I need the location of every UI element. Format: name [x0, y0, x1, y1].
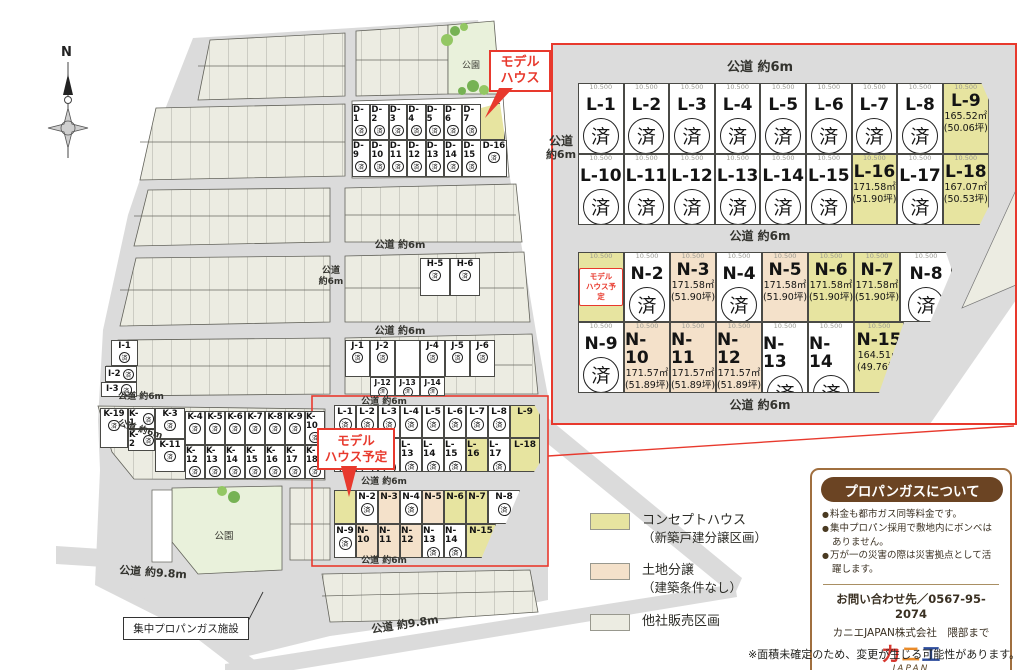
road-label-6m: 公道 約6m	[96, 392, 186, 403]
divider	[823, 584, 999, 585]
sold-seal: 済	[583, 189, 619, 225]
model-house-plan-callout: モデル ハウス予定	[317, 428, 395, 470]
lot-id-label: L-6	[447, 408, 463, 417]
sold-seal: 済	[355, 161, 367, 173]
road-label-6m-vertical: 公道 約6m	[317, 266, 345, 288]
sold-seal: 済	[813, 375, 849, 393]
sold-seal: 済	[466, 125, 478, 137]
lot-area-tsubo: (51.90坪)	[763, 292, 807, 304]
map-graphic: コンセプトハウス （新築戸建分譲区画）	[642, 512, 767, 546]
lot-K-17: K-17済	[285, 445, 305, 479]
sold-seal: 済	[583, 118, 619, 154]
lot-area-tsubo: (51.90坪)	[852, 194, 896, 206]
lot-N-9: 10.500N-9済	[578, 322, 624, 393]
lot-id-label: N-14	[445, 527, 465, 546]
lot-N-10: N-10	[356, 524, 378, 558]
lot-id-label: D-11	[390, 142, 406, 160]
sold-seal: 済	[811, 118, 847, 154]
lot-id-label: N-12	[717, 332, 761, 368]
lot-K-13: K-13済	[205, 445, 225, 479]
lot-N-3: 10.500N-3171.58㎡(51.90坪)	[670, 252, 716, 322]
lot-id-label: L-12	[671, 168, 713, 186]
lot-id-label: L-8	[491, 408, 507, 417]
lot-id-label: N-13	[763, 336, 807, 372]
lot-id-label: N-7	[860, 262, 893, 280]
lot-area-sqm: 171.58㎡	[672, 280, 715, 292]
sold-seal: 済	[405, 418, 418, 431]
callout-arrow-icon	[333, 466, 373, 500]
lot-id-label: L-7	[860, 97, 890, 115]
lot-cell	[395, 340, 420, 377]
lot-K-4: K-4済	[185, 411, 205, 445]
lot-id-label: L-16	[854, 164, 896, 182]
lot-id-label: L-15	[445, 441, 465, 460]
sold-seal: 済	[269, 466, 281, 478]
lot-id-label: N-10	[357, 527, 377, 546]
sold-seal: 済	[720, 118, 756, 154]
map-graphic	[65, 97, 72, 104]
lot-D-14: D-14済	[444, 140, 462, 177]
building-strip	[152, 490, 172, 562]
sold-seal: 済	[411, 125, 423, 137]
lot-id-label: D-7	[463, 106, 479, 124]
lot-id-label: I-2	[108, 370, 121, 379]
zoom-connector-line	[548, 426, 1014, 456]
lot-id-label: N-14	[809, 336, 853, 372]
lot-area-tsubo: (50.06坪)	[944, 123, 988, 135]
propane-bullet: 集中プロパン採用で敷地内にボンベはありません。	[822, 522, 1000, 550]
sold-seal: 済	[498, 503, 511, 516]
lot-N-5: N-5	[422, 490, 444, 524]
map-graphic	[106, 338, 330, 396]
map-graphic: ハウス予定	[584, 282, 618, 302]
lot-id-label: L-6	[814, 97, 844, 115]
lot-J-14: J-14済	[420, 377, 445, 396]
lot-id-label: N-5	[424, 493, 442, 502]
lot-dimension: 10.500	[717, 323, 761, 330]
legend-label: 他社販売区画	[642, 613, 720, 631]
lot-id-label: H-5	[427, 260, 444, 269]
callout-line2: ハウス	[500, 71, 539, 87]
sold-seal: 済	[123, 369, 135, 381]
lot-dimension: 10.500	[898, 155, 942, 162]
sold-seal: 済	[429, 125, 441, 137]
sold-seal: 済	[164, 420, 176, 432]
lot-L-15: L-15済	[444, 438, 466, 472]
lot-id-label: L-1	[586, 97, 616, 115]
map-graphic	[356, 25, 448, 96]
lot-id-label: N-3	[380, 493, 398, 502]
lot-N-12: 10.500N-12171.57㎡(51.89坪)	[716, 322, 762, 393]
propane-bullet: 料金も都市ガス同等料金です。	[822, 508, 1000, 522]
sold-seal: 済	[449, 461, 462, 472]
sold-seal: 済	[377, 352, 389, 364]
legend: コンセプトハウス （新築戸建分譲区画） 土地分譲 （建築条件なし） 他社販売区画	[590, 512, 767, 647]
lot-L-10: 10.500L-10済	[578, 154, 624, 225]
sold-seal: 済	[628, 118, 664, 154]
propane-bullet: 万が一の災害の際は災害拠点として活躍します。	[822, 549, 1000, 577]
lot-N-10: 10.500N-10171.57㎡(51.89坪)	[624, 322, 670, 393]
sold-seal: 済	[811, 189, 847, 225]
lot-I-2: I-2済	[105, 366, 137, 382]
lot-id-label: L-13	[401, 441, 421, 460]
lot-L-14: 10.500L-14済	[760, 154, 806, 225]
sold-seal: 済	[427, 461, 440, 472]
sold-seal: 済	[429, 270, 441, 282]
sold-seal: 済	[902, 118, 938, 154]
sold-seal: 済	[269, 423, 281, 435]
lot-id-label: D-15	[463, 142, 479, 160]
lot-L-5: L-5済	[422, 405, 444, 438]
road-label-6m: 公道 約6m	[340, 326, 460, 338]
lot-area-tsubo: (51.90坪)	[671, 292, 715, 304]
sold-seal: 済	[189, 466, 201, 478]
lot-N-13: 10.500N-13済	[762, 322, 808, 393]
lot-id-label: K-3	[162, 410, 177, 419]
sold-seal: 済	[427, 352, 439, 364]
sold-seal: 済	[471, 418, 484, 431]
lot-H-5: H-5済	[420, 258, 450, 296]
lot-dimension: 10.500	[761, 84, 805, 91]
inset-road-label-bottom: 公道 約6m	[640, 398, 880, 412]
lot-L-6: L-6済	[444, 405, 466, 438]
road-label-line1: 公道	[317, 266, 345, 277]
lot-id-label: D-6	[445, 106, 461, 124]
site-plan-flyer: N D-1済D-2済D-3済D-4済D-5済D-6済D-7済D-9済D-10済D…	[0, 0, 1024, 670]
lot-J-1: J-1済	[345, 340, 370, 377]
lot-id-label: N-7	[468, 493, 486, 502]
lot-L-18: L-18	[510, 438, 540, 472]
inset-road-label-left: 公道 約6m	[538, 134, 584, 162]
lot-id-label: L-7	[469, 408, 485, 417]
lot-id-label: N-8	[909, 266, 942, 284]
sold-seal: 済	[355, 125, 367, 137]
lot-area-tsubo: (50.53坪)	[944, 194, 988, 206]
sold-seal: 済	[392, 161, 404, 173]
lot-dimension: 10.500	[944, 155, 988, 162]
lot-L-8: L-8済	[488, 405, 510, 438]
sold-seal: 済	[674, 189, 710, 225]
propane-title: プロパンガスについて	[821, 477, 1003, 502]
lot-area-sqm: 171.58㎡	[853, 182, 896, 194]
lot-L-3: 10.500L-3済	[669, 83, 715, 154]
lot-J-2: J-2済	[370, 340, 395, 377]
lot-N-3: N-3	[378, 490, 400, 524]
sold-seal: 済	[720, 189, 756, 225]
lot-N-7: 10.500N-7171.58㎡(51.90坪)	[854, 252, 900, 322]
lot-area-tsubo: (51.90坪)	[809, 292, 853, 304]
propane-contact-phone: お問い合わせ先／0567-95-2074	[821, 591, 1001, 621]
sold-seal: 済	[411, 161, 423, 173]
lot-L-18: 10.500L-18167.07㎡(50.53坪)	[943, 154, 989, 225]
lot-id-label: K-7	[247, 413, 262, 422]
legend-label: 土地分譲	[642, 562, 742, 580]
lot-J-6: J-6済	[470, 340, 495, 377]
lot-dimension: 10.500	[901, 253, 951, 260]
lot-J-13: J-13済	[395, 377, 420, 396]
sold-seal: 済	[189, 423, 201, 435]
sold-seal: 済	[229, 466, 241, 478]
lot-dimension: 10.500	[671, 253, 715, 260]
model-house-plan-mini-label: モデルハウス予定	[579, 268, 623, 306]
lot-id-label: N-13	[423, 527, 443, 546]
lot-dimension: 10.500	[625, 253, 669, 260]
lot-L-11: 10.500L-11済	[624, 154, 670, 225]
legend-swatch-other	[590, 614, 630, 631]
map-graphic	[467, 80, 479, 92]
legend-item-other: 他社販売区画	[590, 613, 767, 631]
lot-area-sqm: 165.52㎡	[944, 111, 987, 123]
sold-seal: 済	[143, 413, 155, 425]
sold-seal: 済	[361, 503, 374, 516]
lot-dimension: 10.500	[579, 84, 623, 91]
lot-D-9: D-9済	[352, 140, 370, 177]
lot-K-12: K-12済	[185, 445, 205, 479]
map-graphic	[460, 23, 468, 31]
lot-id-label: K-14	[226, 447, 244, 465]
lot-id-label: D-1	[353, 106, 369, 124]
sold-seal: 済	[452, 352, 464, 364]
lot-D-13: D-13済	[426, 140, 444, 177]
lot-K-9: K-9済	[285, 411, 305, 445]
lot-id-label: K-9	[287, 413, 302, 422]
lot-dimension: 10.500	[625, 323, 669, 330]
lot-L-13: 10.500L-13済	[715, 154, 761, 225]
lot-id-label: D-12	[408, 142, 424, 160]
lot-id-label: I-1	[118, 342, 131, 351]
lot-id-label: L-17	[489, 441, 509, 460]
lot-id-label: N-4	[402, 493, 420, 502]
lot-L-17: L-17済	[488, 438, 510, 472]
lot-N-11: 10.500N-11171.57㎡(51.89坪)	[670, 322, 716, 393]
sold-seal: 済	[374, 125, 386, 137]
lot-id-label: D-5	[427, 106, 443, 124]
lot-D-7: D-7済	[462, 104, 480, 140]
sold-seal: 済	[488, 152, 500, 164]
map-graphic	[485, 88, 513, 118]
lot-id-label: J-4	[426, 342, 439, 351]
road-label-6m: 公道 約6m	[340, 240, 460, 252]
sold-seal: 済	[628, 189, 664, 225]
lot-L-1: 10.500L-1済	[578, 83, 624, 154]
lot-id-label: L-15	[808, 168, 850, 186]
lot-id-label: L-10	[580, 168, 622, 186]
map-graphic	[228, 491, 240, 503]
sold-seal: 済	[765, 189, 801, 225]
lot-J-4: J-4済	[420, 340, 445, 377]
road-label-6m-smallmap-bottom: 公道 約6m	[344, 556, 424, 567]
lot-id-label: L-3	[677, 97, 707, 115]
sold-seal: 済	[229, 423, 241, 435]
lot-N-14: N-14済	[444, 524, 466, 558]
road-label-line2: 約6m	[317, 277, 345, 288]
lot-dimension: 10.500	[716, 84, 760, 91]
lot-dimension: 10.500	[579, 253, 623, 260]
lot-N-4: 10.500N-4済	[716, 252, 762, 322]
lot-id-label: L-17	[899, 168, 941, 186]
lot-N-4: N-4済	[400, 490, 422, 524]
callout-line2: ハウス予定	[325, 449, 388, 465]
lot-H-6: H-6済	[450, 258, 480, 296]
propane-company: カニエJAPAN株式会社 隈部まで	[821, 625, 1001, 640]
legend-item-concept: コンセプトハウス （新築戸建分譲区画）	[590, 512, 767, 546]
inset-road-label-top: 公道 約6m	[640, 60, 880, 76]
lot-id-label: J-6	[476, 342, 489, 351]
lot-id-label: H-6	[457, 260, 474, 269]
lot-L-17: 10.500L-17済	[897, 154, 943, 225]
lot-id-label: N-6	[814, 262, 847, 280]
sold-seal: 済	[674, 118, 710, 154]
lot-id-label: N-3	[676, 262, 709, 280]
sold-seal: 済	[249, 466, 261, 478]
lot-id-label: N-4	[722, 266, 755, 284]
lot-dimension: 10.500	[807, 84, 851, 91]
lot-id-label: N-11	[671, 332, 715, 368]
callout-arrow-icon	[485, 88, 525, 122]
map-graphic: 他社販売区画	[642, 613, 720, 631]
lot-area-tsubo: (51.90坪)	[855, 292, 899, 304]
lot-dimension: 10.500	[855, 323, 903, 330]
lot-L-2: 10.500L-2済	[624, 83, 670, 154]
callout-line1: モデル	[500, 55, 539, 71]
lot-J-5: J-5済	[445, 340, 470, 377]
sold-seal: 済	[427, 547, 440, 558]
lot-id-label: L-16	[467, 441, 487, 460]
lot-I-1: I-1済	[111, 340, 138, 366]
compass-north-label: N	[61, 45, 72, 60]
lot-D-12: D-12済	[407, 140, 425, 177]
sold-seal: 済	[856, 118, 892, 154]
sold-seal: 済	[477, 352, 489, 364]
park-label-top: 公園	[448, 58, 494, 71]
sold-seal: 済	[629, 287, 665, 322]
lot-N-6: N-6	[444, 490, 466, 524]
lot-id-label: N-9	[336, 527, 354, 536]
lot-id-label: J-2	[376, 342, 389, 351]
lot-dimension: 10.500	[625, 84, 669, 91]
lot-id-label: L-5	[425, 408, 441, 417]
sold-seal: 済	[493, 418, 506, 431]
lot-area-sqm: 171.57㎡	[672, 368, 715, 380]
propane-bullet-list: 料金も都市ガス同等料金です。 集中プロパン採用で敷地内にボンベはありません。 万…	[821, 508, 1001, 577]
callout-line1: モデル	[337, 433, 375, 449]
lot-area-sqm: 171.57㎡	[718, 368, 761, 380]
map-graphic	[450, 26, 460, 36]
lot-id-label: D-10	[371, 142, 387, 160]
road-label-line2: 約6m	[538, 148, 584, 161]
lot-id-label: L-14	[762, 168, 804, 186]
lot-id-label: K-6	[227, 413, 242, 422]
lot-N-5: 10.500N-5171.58㎡(51.90坪)	[762, 252, 808, 322]
lot-D-6: D-6済	[444, 104, 462, 140]
map-graphic	[345, 184, 522, 242]
lot-id-label: J-13	[399, 379, 415, 387]
lot-dimension: 10.500	[716, 155, 760, 162]
lot-dimension: 10.500	[625, 155, 669, 162]
legend-swatch-concept	[590, 513, 630, 530]
lot-id-label: N-10	[625, 332, 669, 368]
sold-seal: 済	[765, 118, 801, 154]
lot-dimension: 10.500	[761, 155, 805, 162]
lot-L-16: 10.500L-16171.58㎡(51.90坪)	[852, 154, 898, 225]
lot-id-label: K-4	[187, 413, 202, 422]
lot-id-label: L-13	[717, 168, 759, 186]
lot-dimension: 10.500	[898, 84, 942, 91]
lot-id-label: N-11	[379, 527, 399, 546]
lot-id-label: L-2	[359, 408, 375, 417]
lot-id-label: J-12	[374, 379, 390, 387]
lot-L-9: 10.500L-9165.52㎡(50.06坪)	[943, 83, 989, 154]
lot-id-label: D-9	[353, 142, 369, 160]
lot-N-2: 10.500N-2済	[624, 252, 670, 322]
sold-seal: 済	[493, 461, 506, 472]
lot-dimension: 10.500	[763, 323, 807, 330]
sold-seal: 済	[403, 387, 413, 396]
sold-seal: 済	[405, 503, 418, 516]
lot-area-sqm: 167.07㎡	[944, 182, 987, 194]
lot-id-label: L-4	[723, 97, 753, 115]
lot-dimension: 10.500	[671, 323, 715, 330]
legend-label: コンセプトハウス	[642, 512, 767, 530]
lot-id-label: N-2	[630, 266, 663, 284]
lot-dimension: 10.500	[809, 323, 853, 330]
lot-id-label: K-8	[267, 413, 282, 422]
lot-id-label: L-2	[632, 97, 662, 115]
lot-dimension: 10.500	[579, 155, 623, 162]
lot-dimension: 10.500	[853, 155, 897, 162]
lot-dimension: 10.500	[670, 84, 714, 91]
lot-dimension: 10.500	[670, 155, 714, 162]
lot-L-15: 10.500L-15済	[806, 154, 852, 225]
sold-seal: 済	[405, 461, 418, 472]
lot-id-label: J-1	[351, 342, 364, 351]
sold-seal: 済	[119, 352, 131, 364]
logo-subtext: JAPAN	[821, 665, 1001, 670]
lot-id-label: D-3	[390, 106, 406, 124]
inset-road-label-mid: 公道 約6m	[640, 229, 880, 243]
lot-N-14: 10.500N-14済	[808, 322, 854, 393]
lot-L-13: L-13済	[400, 438, 422, 472]
lot-id-label: D-16	[483, 142, 506, 151]
lot-id-label: L-1	[337, 408, 353, 417]
map-graphic	[134, 188, 330, 246]
lot-K-14: K-14済	[225, 445, 245, 479]
lot-id-label: J-5	[451, 342, 464, 351]
lot-K-5: K-5済	[205, 411, 225, 445]
sold-seal: 済	[459, 270, 471, 282]
sold-seal: 済	[428, 387, 438, 396]
sold-seal: 済	[209, 423, 221, 435]
sold-seal: 済	[721, 287, 757, 322]
compass-arrow-icon	[63, 74, 73, 95]
map-graphic: 土地分譲 （建築条件なし）	[642, 562, 742, 596]
lot-D-5: D-5済	[426, 104, 444, 140]
sold-seal: 済	[374, 161, 386, 173]
lot-area-tsubo: (51.89坪)	[717, 380, 761, 392]
lot-id-label: L-4	[403, 408, 419, 417]
lot-D-1: D-1済	[352, 104, 370, 140]
lot-dimension: 10.500	[579, 323, 623, 330]
sold-seal: 済	[449, 418, 462, 431]
lot-id-label: N-15	[857, 332, 902, 350]
compass: N	[48, 45, 88, 158]
lot-D-2: D-2済	[370, 104, 388, 140]
lot-D-3: D-3済	[389, 104, 407, 140]
lot-id-label: D-4	[408, 106, 424, 124]
lot-id-label: L-5	[768, 97, 798, 115]
lot-dimension: 10.500	[807, 155, 851, 162]
lot-L-9: L-9	[510, 405, 540, 438]
